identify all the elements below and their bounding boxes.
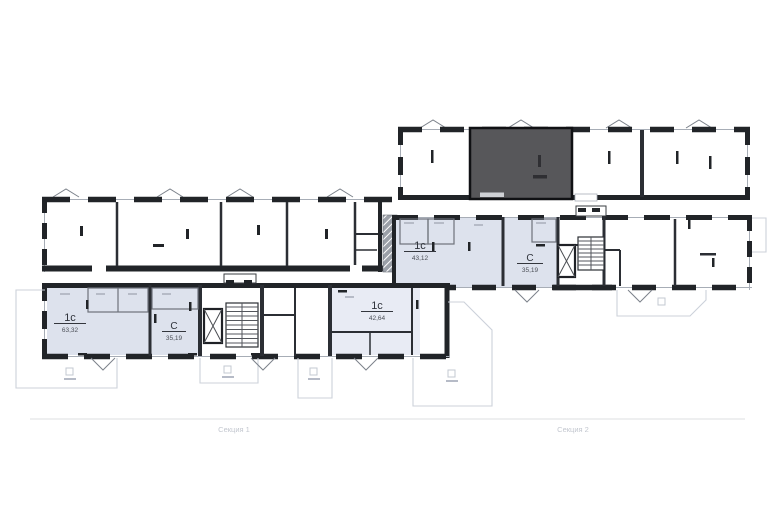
door-opening: [350, 265, 362, 272]
stairs-icon: [226, 303, 258, 347]
door-tick: [688, 220, 691, 229]
door-tick: [431, 150, 434, 163]
door-tick: [226, 280, 234, 284]
door-tick: [536, 244, 545, 247]
elevator-icon: [204, 309, 222, 343]
door-tick: [608, 151, 611, 164]
apartment-type-label: С: [526, 253, 533, 264]
door-tick: [709, 156, 712, 169]
wing-middle-right: 1с 43,12 С 35,19: [392, 206, 752, 290]
unit-door-opening: [480, 193, 504, 198]
wing-bottom: 1с 63,32 С 35,19 1с 42,64: [42, 274, 450, 358]
apartment-fill: [396, 217, 558, 288]
door-tick: [676, 151, 679, 164]
door-tick: [153, 244, 164, 247]
wing-top: [398, 120, 750, 201]
apartment-area-label: 63,32: [62, 327, 79, 334]
door-tick: [533, 175, 547, 179]
terrace-area-text: [446, 380, 458, 382]
highlighted-unit-shape[interactable]: [470, 128, 572, 199]
dimension-text: [536, 222, 546, 224]
door-tick: [257, 225, 260, 235]
terrace-area-text: [64, 378, 76, 380]
apartment-type-label: 1с: [371, 300, 383, 312]
apartment-area-label: 42,64: [369, 315, 386, 322]
elevator-icon: [558, 245, 575, 277]
door-tick: [578, 208, 586, 212]
dimension-text: [474, 224, 483, 226]
dimension-text: [434, 222, 444, 224]
door-tick: [154, 314, 157, 323]
door-tick: [712, 258, 715, 267]
dimension-text: [404, 222, 414, 224]
dimension-text: [162, 293, 171, 295]
dimension-text: [96, 293, 105, 295]
apartment-type-label: 1с: [64, 312, 76, 324]
door-tick: [325, 229, 328, 239]
door-tick: [188, 353, 197, 356]
wing-top-floor: [398, 127, 750, 200]
door-tick: [251, 353, 260, 356]
apartment-area-label: 35,19: [166, 335, 183, 342]
apartment-area-label: 35,19: [522, 267, 539, 274]
door-tick: [592, 208, 600, 212]
door-tick: [186, 229, 189, 239]
section-1-label: Секция 1: [218, 425, 250, 434]
terrace-area-text: [308, 378, 320, 380]
floor-plan-canvas: 1с 43,12 С 35,19: [0, 0, 770, 510]
door-tick: [244, 280, 252, 284]
door-tick: [189, 302, 192, 311]
door-tick: [416, 300, 419, 309]
door-tick: [78, 353, 87, 356]
apartment-area-label: 43,12: [412, 255, 429, 262]
door-tick: [538, 155, 541, 167]
door-tick: [80, 226, 83, 236]
dimension-text: [60, 293, 70, 295]
stairs-icon: [578, 237, 604, 270]
section-2-label: Секция 2: [557, 425, 589, 434]
wing-floor: [44, 199, 390, 269]
highlighted-unit[interactable]: [470, 128, 572, 199]
wing-middle-left: [42, 189, 397, 272]
apartment-type-label: 1с: [414, 240, 426, 252]
door-tick: [86, 300, 89, 309]
door-opening: [92, 265, 106, 272]
floor-plan: 1с 43,12 С 35,19: [0, 0, 770, 510]
door-tick: [432, 242, 435, 251]
door-tick: [338, 290, 347, 293]
terrace-area-text: [222, 376, 234, 378]
apartment-type-label: С: [170, 321, 177, 332]
dimension-text: [345, 296, 354, 298]
door-tick: [468, 242, 471, 251]
interior-wall-stub: [700, 253, 716, 256]
dimension-text: [128, 293, 137, 295]
corridor-recess: [575, 194, 597, 201]
